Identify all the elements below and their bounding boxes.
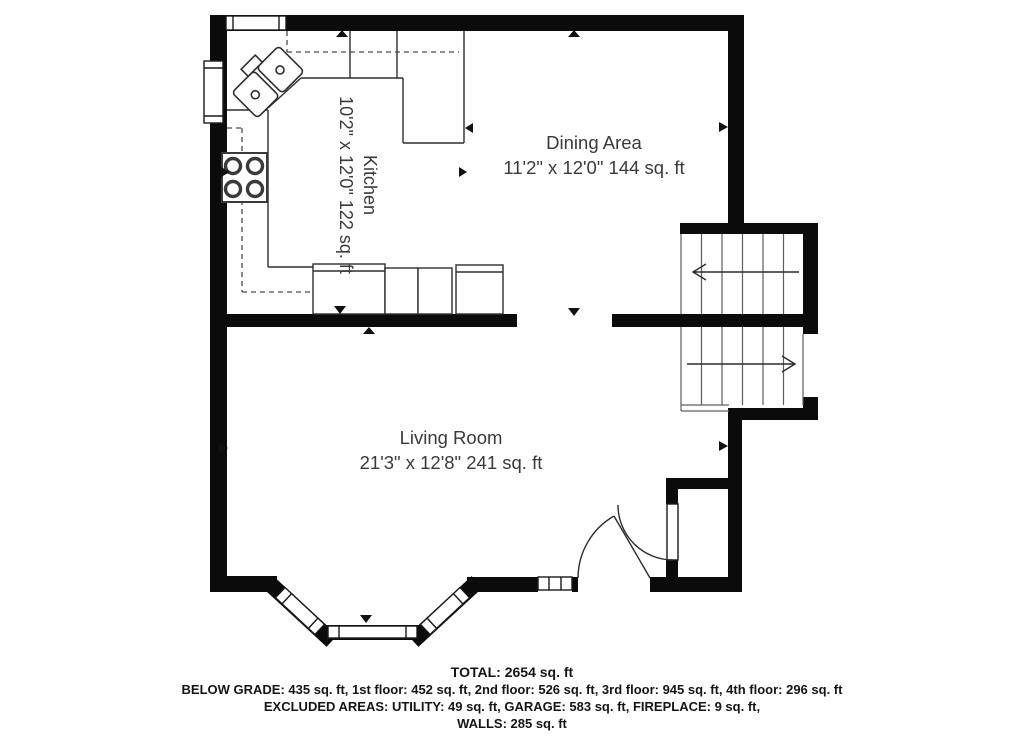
wall-kitchen-living — [210, 314, 517, 327]
room-label-dining: Dining Area 11'2" x 12'0" 144 sq. ft — [503, 130, 684, 180]
summary-floors: BELOW GRADE: 435 sq. ft, 1st floor: 452 … — [0, 681, 1024, 698]
stair-landing-edge — [681, 405, 729, 411]
summary-total: TOTAL: 2654 sq. ft — [0, 664, 1024, 681]
closet-door-panel — [667, 504, 678, 560]
window-bay-bottom — [328, 626, 417, 638]
marker-right-icon — [459, 167, 467, 177]
entry-door-swing-arc — [578, 516, 614, 578]
window-top-wall — [226, 16, 286, 30]
window-bottom-wall — [538, 577, 572, 590]
marker-down-icon — [360, 615, 372, 623]
stair-arrow-down — [687, 356, 795, 372]
entry-door — [578, 516, 650, 578]
entry-door-panel — [614, 516, 650, 578]
sink-faucet — [241, 55, 262, 76]
summary-walls: WALLS: 285 sq. ft — [0, 715, 1024, 732]
walls — [210, 15, 818, 640]
marker-down-icon — [568, 308, 580, 316]
room-dimensions: 10'2" x 12'0" 122 sq. ft — [334, 96, 358, 274]
marker-up-icon — [363, 327, 375, 334]
appliance-cabinet-2 — [418, 268, 452, 314]
room-label-living: Living Room 21'3" x 12'8" 241 sq. ft — [360, 425, 543, 475]
wall-closet-left-upper — [666, 478, 678, 504]
room-name: Living Room — [360, 425, 543, 450]
stair-treads-lower — [681, 327, 803, 405]
marker-right-icon — [719, 122, 728, 132]
room-name: Dining Area — [503, 130, 684, 155]
window-bay-left — [275, 587, 324, 634]
closet-door — [618, 504, 678, 560]
area-summary: TOTAL: 2654 sq. ft BELOW GRADE: 435 sq. … — [0, 664, 1024, 732]
kitchen-sink — [225, 39, 304, 118]
marker-left-icon — [465, 123, 473, 133]
summary-excluded: EXCLUDED AREAS: UTILITY: 49 sq. ft, GARA… — [0, 698, 1024, 715]
stove-cooktop — [222, 153, 267, 202]
room-name: Kitchen — [358, 96, 382, 274]
room-dimensions: 11'2" x 12'0" 144 sq. ft — [503, 155, 684, 180]
wall-stair-right-upper — [803, 223, 818, 334]
closet-door-swing-arc — [618, 505, 673, 560]
marker-up-icon — [568, 30, 580, 37]
marker-up-icon — [336, 30, 348, 37]
appliance-cabinet-1 — [385, 268, 418, 314]
floor-plan-drawing — [0, 0, 1024, 660]
wall-bottom-right — [650, 577, 742, 592]
room-label-kitchen: Kitchen 10'2" x 12'0" 122 sq. ft — [334, 96, 382, 274]
window-bay-right — [420, 587, 469, 634]
wall-top — [210, 15, 744, 31]
floor-plan-page: Kitchen 10'2" x 12'0" 122 sq. ft Dining … — [0, 0, 1024, 738]
wall-right-lower — [728, 408, 742, 592]
marker-right-icon — [719, 441, 728, 451]
room-dimensions: 21'3" x 12'8" 241 sq. ft — [360, 450, 543, 475]
wall-stair-top — [680, 223, 818, 234]
wall-bottom-jamb — [572, 577, 578, 592]
window-left-wall — [204, 61, 223, 123]
wall-stair-mid — [612, 314, 803, 327]
wall-dining-right — [728, 15, 744, 233]
